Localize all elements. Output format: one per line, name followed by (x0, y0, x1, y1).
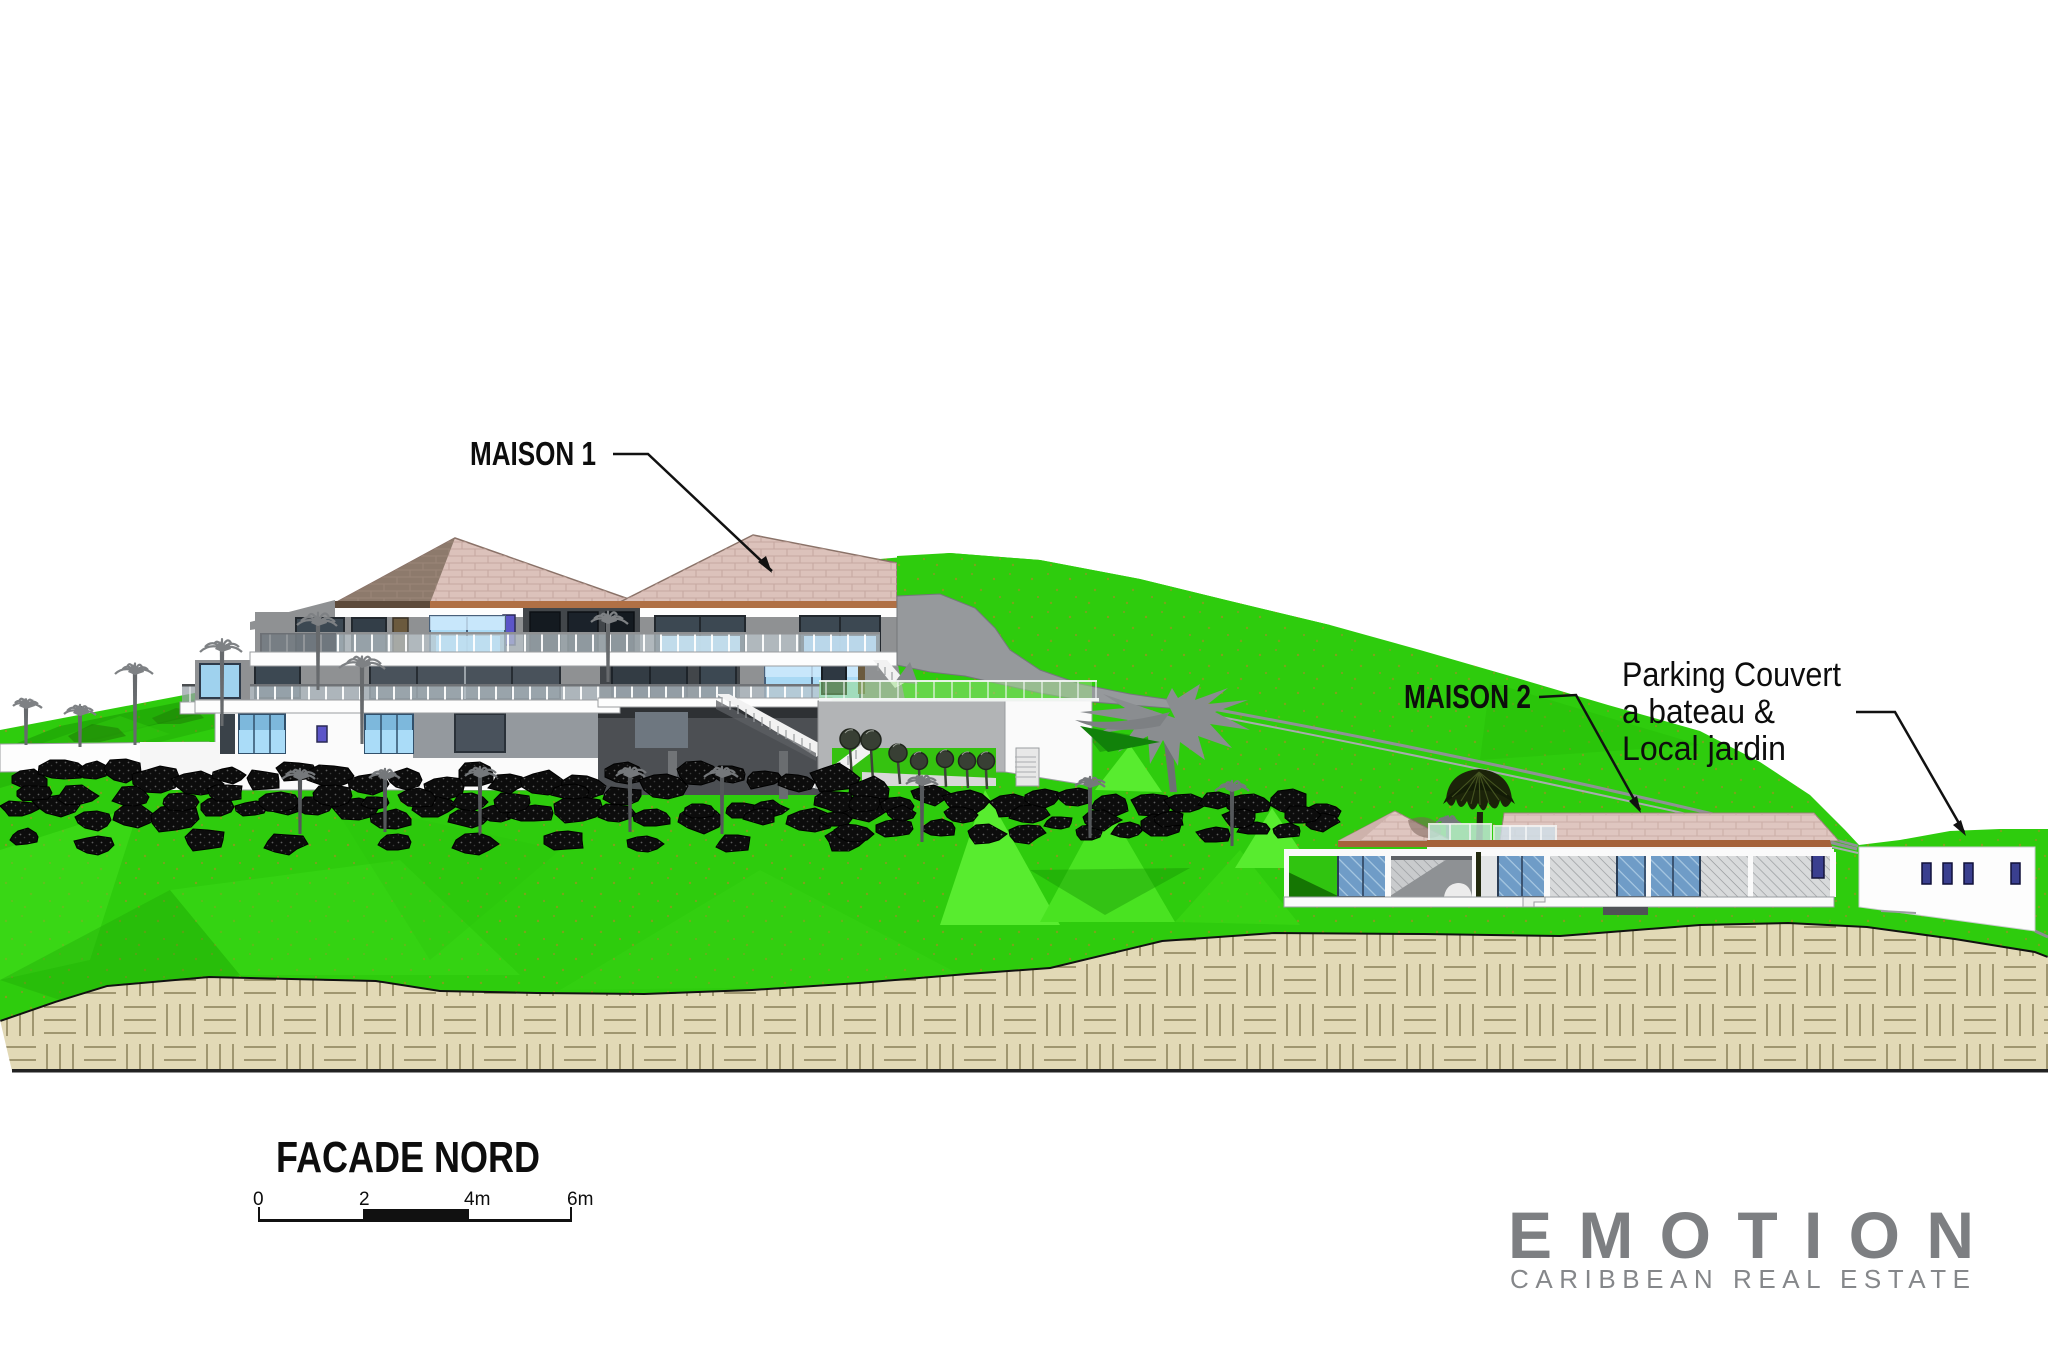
svg-text:a bateau &: a bateau & (1622, 693, 1775, 731)
svg-text:6m: 6m (567, 1189, 593, 1210)
svg-text:4m: 4m (464, 1189, 490, 1210)
svg-text:MAISON 2: MAISON 2 (1404, 678, 1531, 715)
svg-text:MAISON 1: MAISON 1 (470, 435, 596, 472)
svg-text:Local jardin: Local jardin (1622, 730, 1786, 768)
svg-text:FACADE NORD: FACADE NORD (276, 1133, 540, 1182)
svg-text:2: 2 (359, 1189, 370, 1210)
svg-text:0: 0 (253, 1189, 264, 1210)
svg-text:Parking Couvert: Parking Couvert (1622, 656, 1841, 694)
